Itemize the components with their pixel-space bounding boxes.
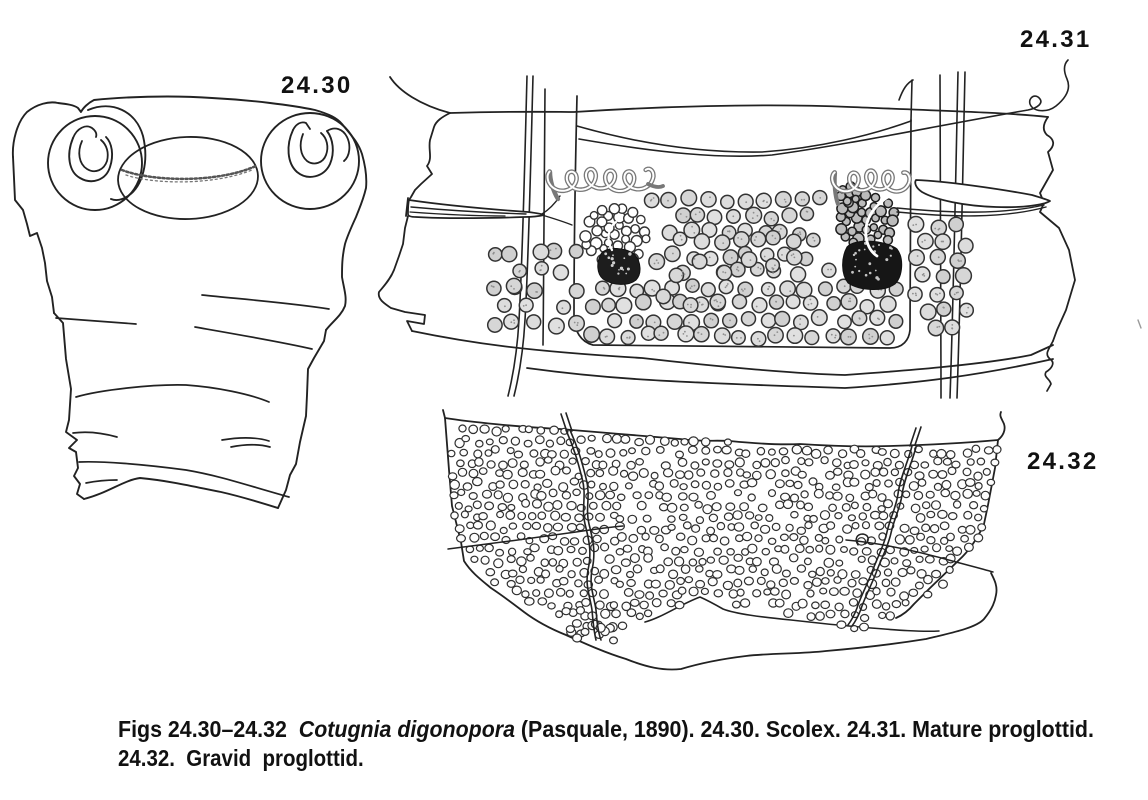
svg-text:24.30: 24.30 <box>281 72 353 99</box>
svg-text:24.31: 24.31 <box>1020 26 1092 53</box>
svg-text:24.32: 24.32 <box>1027 448 1099 475</box>
